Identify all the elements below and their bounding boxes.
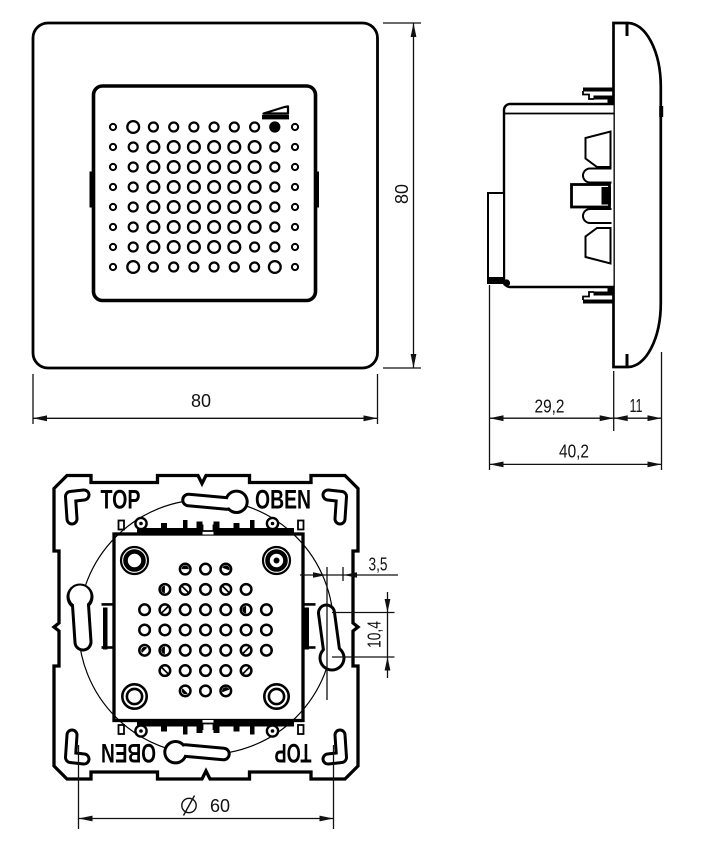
svg-text:60: 60 <box>210 796 230 816</box>
svg-text:TOP: TOP <box>101 485 141 515</box>
svg-text:OBEN: OBEN <box>101 738 156 768</box>
svg-text:29,2: 29,2 <box>535 397 565 417</box>
svg-text:10,4: 10,4 <box>364 621 384 648</box>
svg-text:TOP: TOP <box>275 738 312 768</box>
svg-text:OBEN: OBEN <box>255 485 311 515</box>
svg-text:80: 80 <box>392 184 412 204</box>
svg-text:80: 80 <box>191 391 211 411</box>
svg-text:40,2: 40,2 <box>559 442 589 462</box>
svg-text:11: 11 <box>630 396 643 416</box>
svg-text:3,5: 3,5 <box>369 555 388 575</box>
